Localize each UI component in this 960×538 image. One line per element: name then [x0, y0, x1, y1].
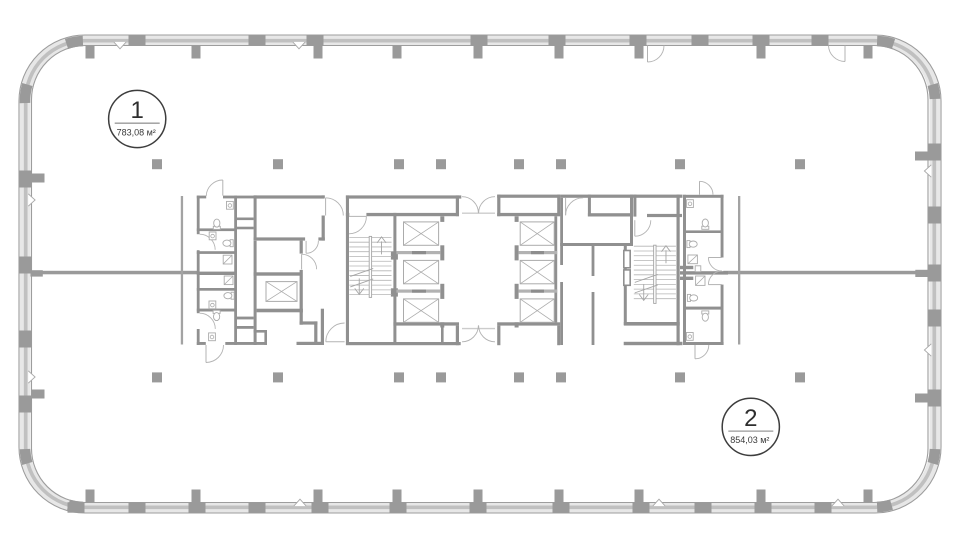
svg-text:1: 1	[131, 97, 144, 124]
svg-text:2: 2	[744, 405, 757, 432]
svg-text:854,03 м²: 854,03 м²	[730, 435, 769, 445]
svg-text:783,08 м²: 783,08 м²	[117, 127, 156, 137]
